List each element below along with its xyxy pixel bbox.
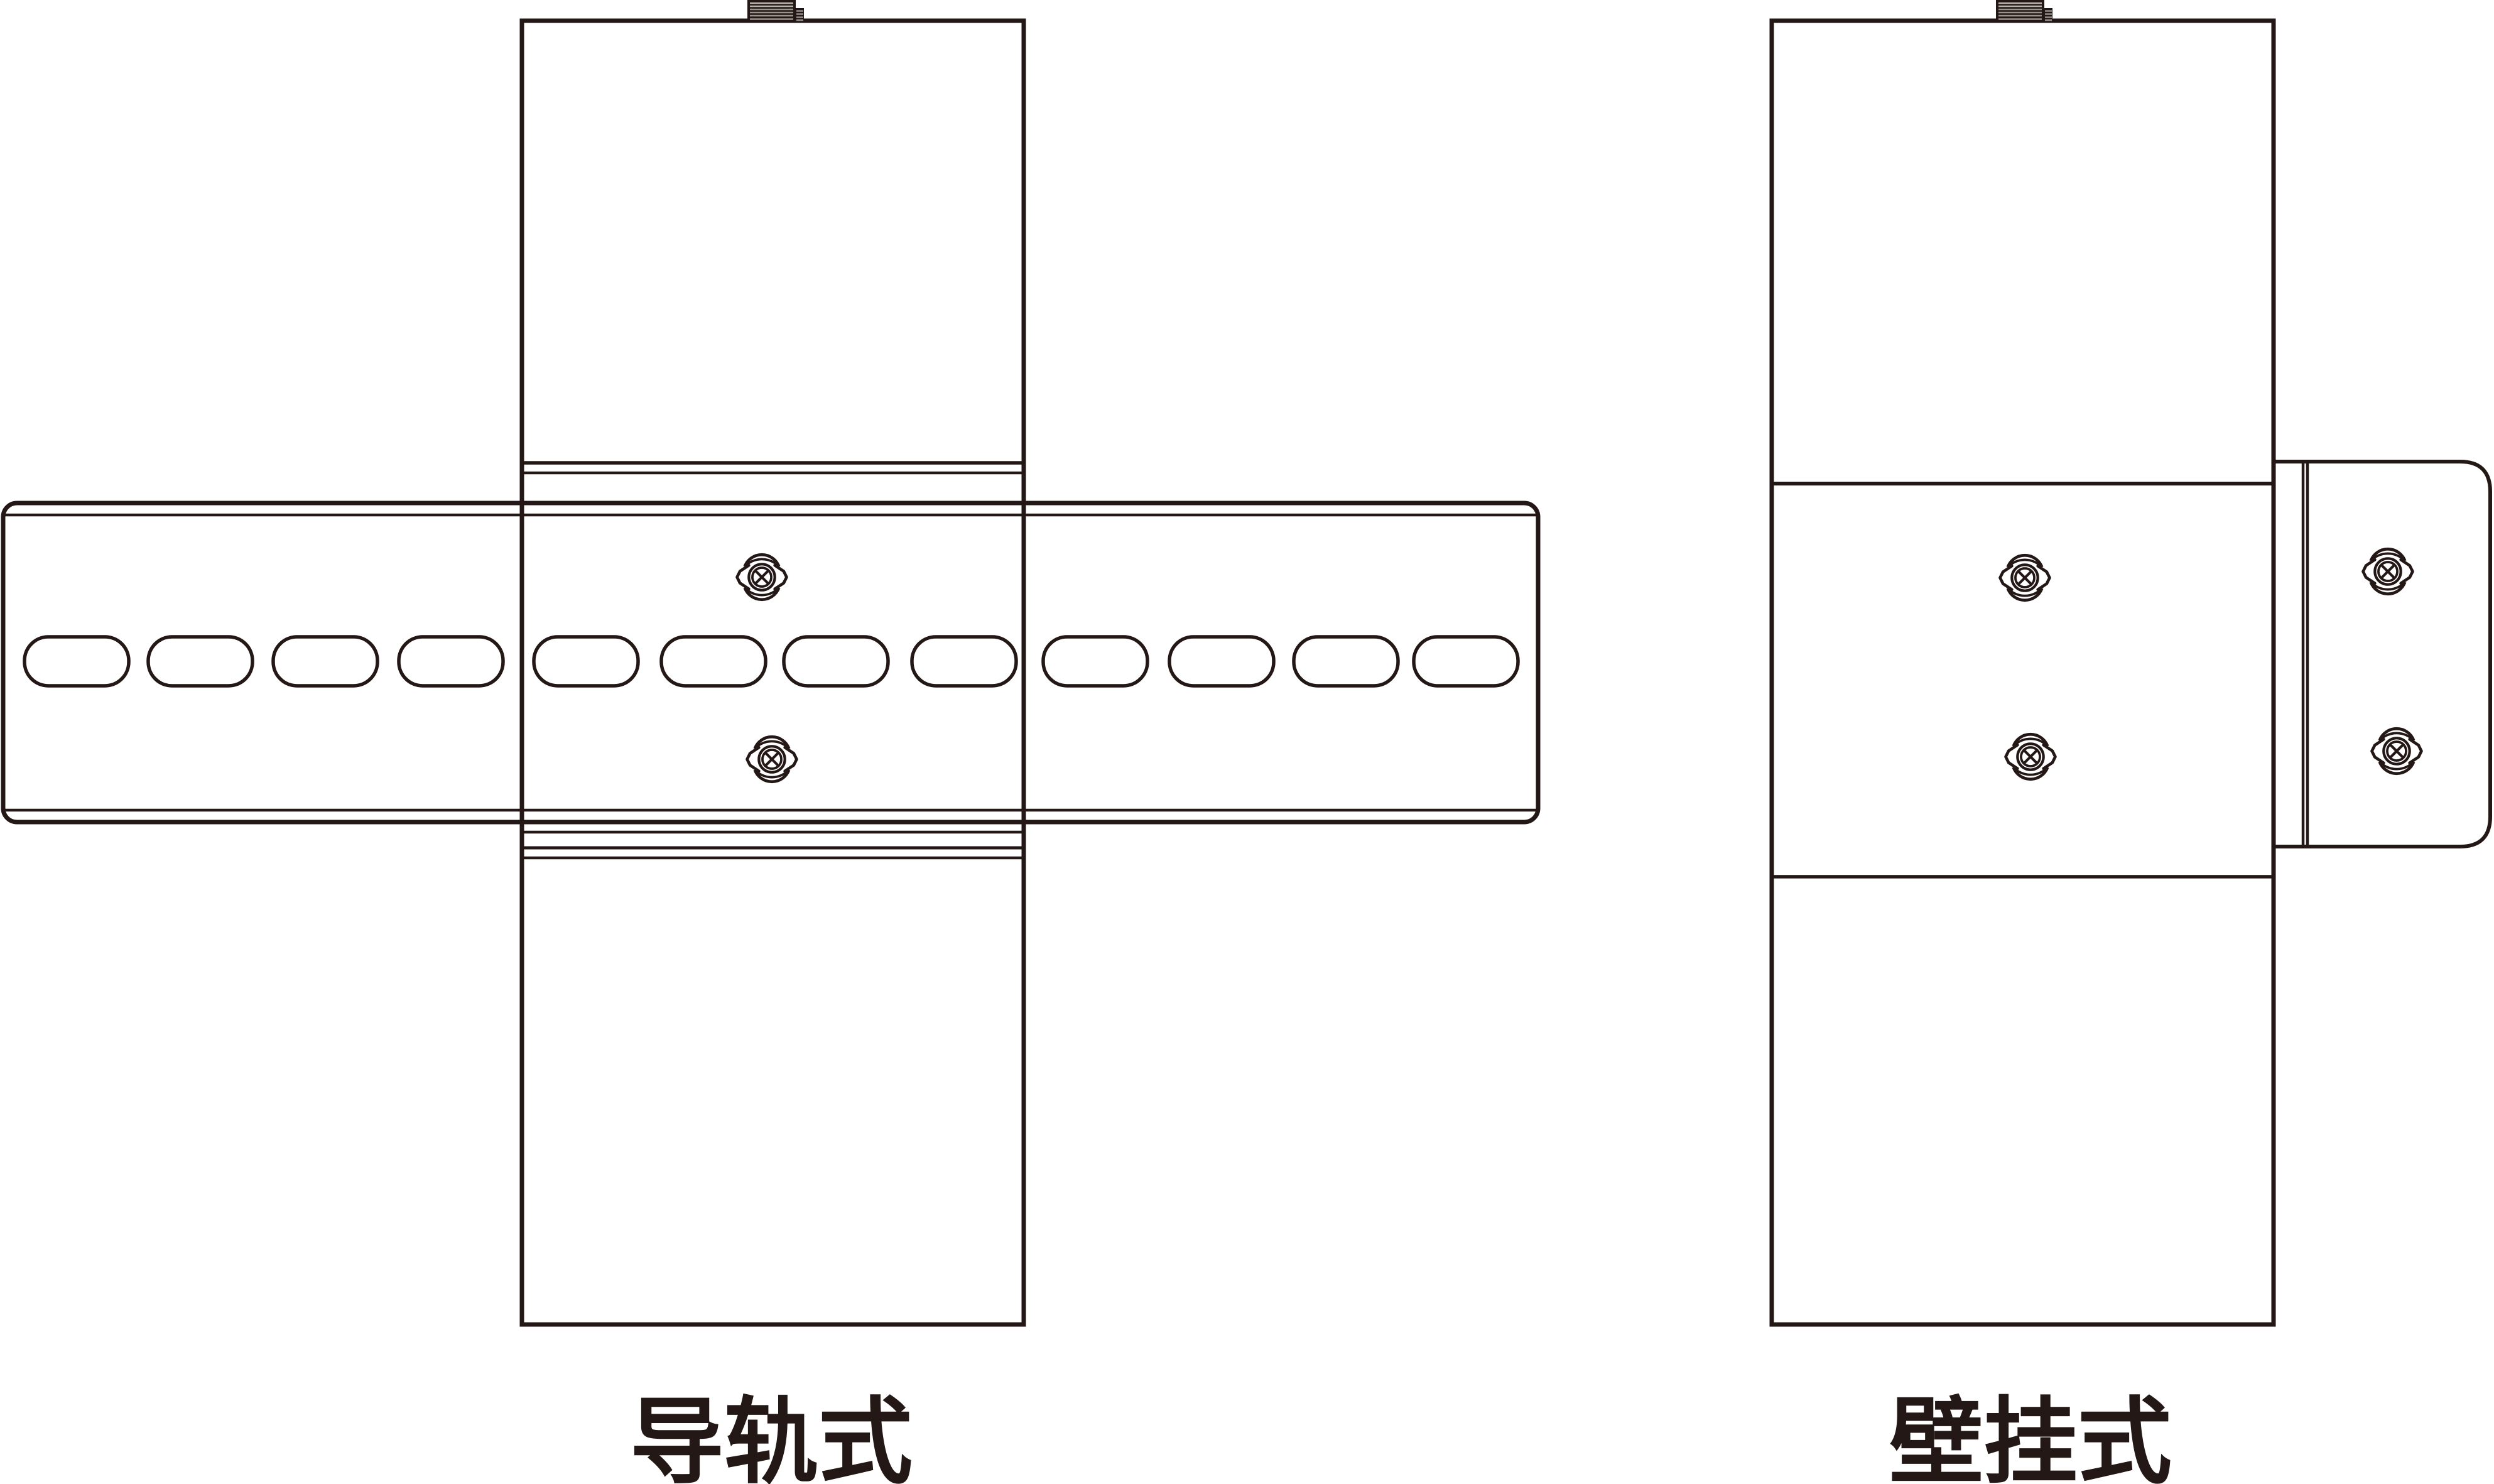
rail-slot (1169, 637, 1274, 686)
mounting-diagram-page: 导轨式 (0, 0, 2494, 1484)
rail-slot (661, 637, 766, 686)
rail-slot (912, 637, 1016, 686)
phillips-screw-icon (2363, 549, 2413, 594)
rail-slot (24, 637, 129, 686)
caption-wall-mount: 壁挂式 (1889, 1389, 2172, 1484)
rail-slot (1043, 637, 1147, 686)
phillips-screw-icon (747, 737, 797, 782)
din-rail-outline (3, 503, 1538, 822)
rail-slot (1294, 637, 1398, 686)
phillips-screw-icon (2000, 555, 2050, 600)
caption-din-rail: 导轨式 (630, 1389, 913, 1484)
phillips-screw-icon (2006, 734, 2056, 779)
din-rail-mount-diagram: 导轨式 (3, 0, 1538, 1484)
antenna-connector-icon (747, 0, 804, 23)
rail-slot (399, 637, 503, 686)
rail-slot (784, 637, 888, 686)
rail-slot (273, 637, 377, 686)
rail-slot (534, 637, 638, 686)
wall-bracket (2274, 462, 2490, 847)
rail-slot (148, 637, 252, 686)
phillips-screw-icon (737, 555, 787, 600)
phillips-screw-icon (2372, 728, 2422, 774)
device-outline (522, 21, 1024, 1324)
din-rail-slots (24, 637, 1518, 686)
mounting-diagrams-figure: 导轨式 (0, 0, 2494, 1484)
din-rail (3, 503, 1538, 822)
device-body-right (1772, 21, 2274, 1324)
device-outline (1772, 21, 2274, 1324)
wall-mount-diagram: 壁挂式 (1772, 0, 2490, 1484)
device-body-left (522, 21, 1024, 1324)
rail-slot (1414, 637, 1518, 686)
antenna-connector-icon (1996, 0, 2052, 23)
